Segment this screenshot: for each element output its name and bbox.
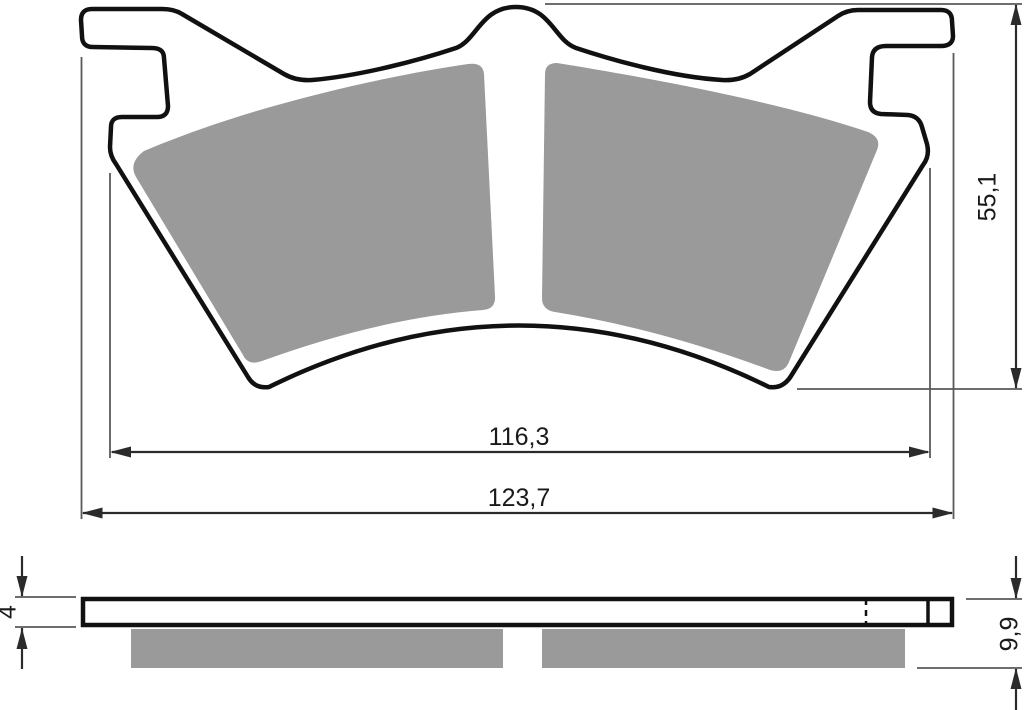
arrowhead-down — [1011, 368, 1022, 389]
arrowhead-down — [1011, 578, 1022, 599]
dimension-label-height: 55,1 — [974, 173, 1002, 222]
backing-plate-side — [83, 599, 952, 625]
arrowhead-right — [933, 508, 954, 519]
brake-pad-technical-drawing: 55,1 116,3 123,7 — [0, 0, 1024, 710]
arrowhead-up — [1011, 4, 1022, 25]
arrowhead-right — [909, 447, 930, 458]
top-view — [81, 7, 953, 387]
dimension-label-overall-thickness: 9,9 — [996, 617, 1024, 652]
dimension-backplate-thickness: 4 — [0, 556, 76, 669]
arrowhead-up — [1011, 668, 1022, 689]
brake-pad-drawing-page: 55,1 116,3 123,7 — [0, 0, 1024, 710]
arrowhead-left — [110, 447, 131, 458]
side-view — [83, 598, 952, 668]
dimension-label-overall-width: 123,7 — [488, 484, 551, 512]
dimension-overall-thickness: 9,9 — [917, 556, 1024, 710]
friction-material-side-right — [542, 629, 905, 668]
arrowhead-up — [17, 628, 28, 649]
arrowhead-left — [82, 508, 103, 519]
dimension-label-backplate-thickness: 4 — [0, 605, 22, 619]
arrowhead-down — [17, 576, 28, 597]
friction-material-side-left — [131, 629, 503, 668]
dimension-label-pad-span: 116,3 — [489, 423, 550, 451]
